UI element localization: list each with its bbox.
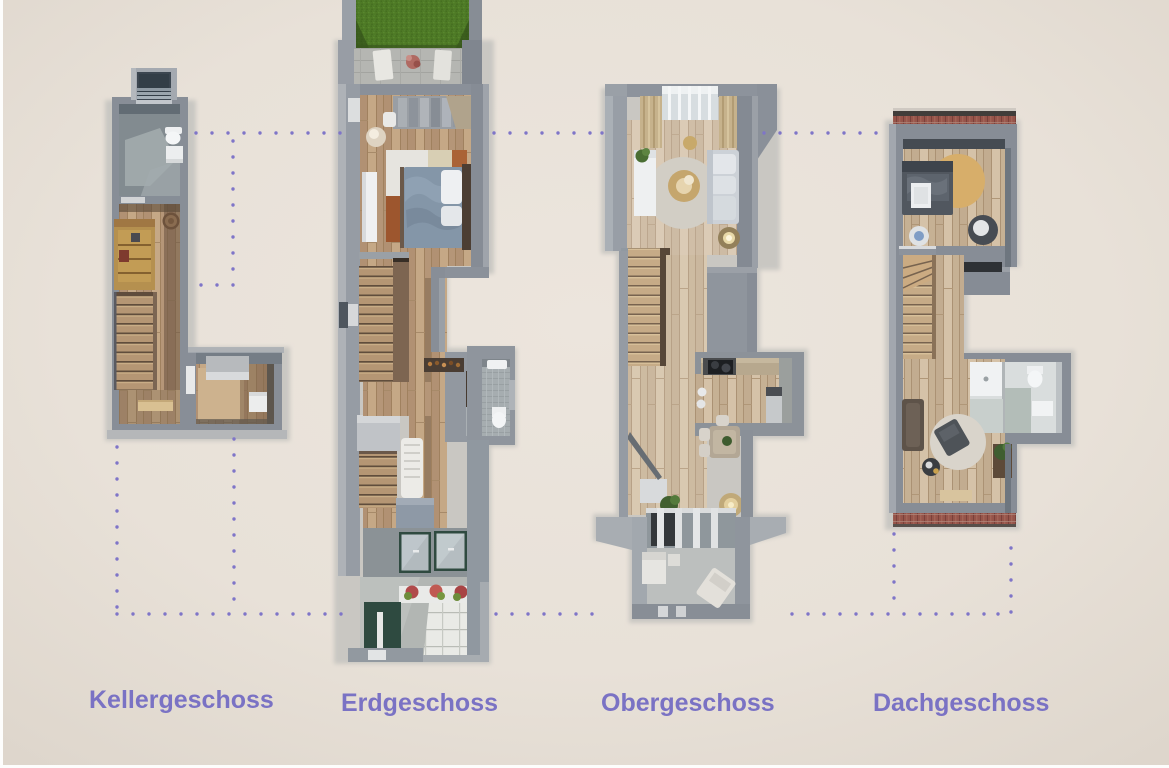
svg-text:Kellergeschoss: Kellergeschoss <box>89 686 274 714</box>
svg-text:Dachgeschoss: Dachgeschoss <box>873 689 1049 717</box>
svg-text:Erdgeschoss: Erdgeschoss <box>341 689 498 717</box>
svg-text:Obergeschoss: Obergeschoss <box>601 689 775 717</box>
